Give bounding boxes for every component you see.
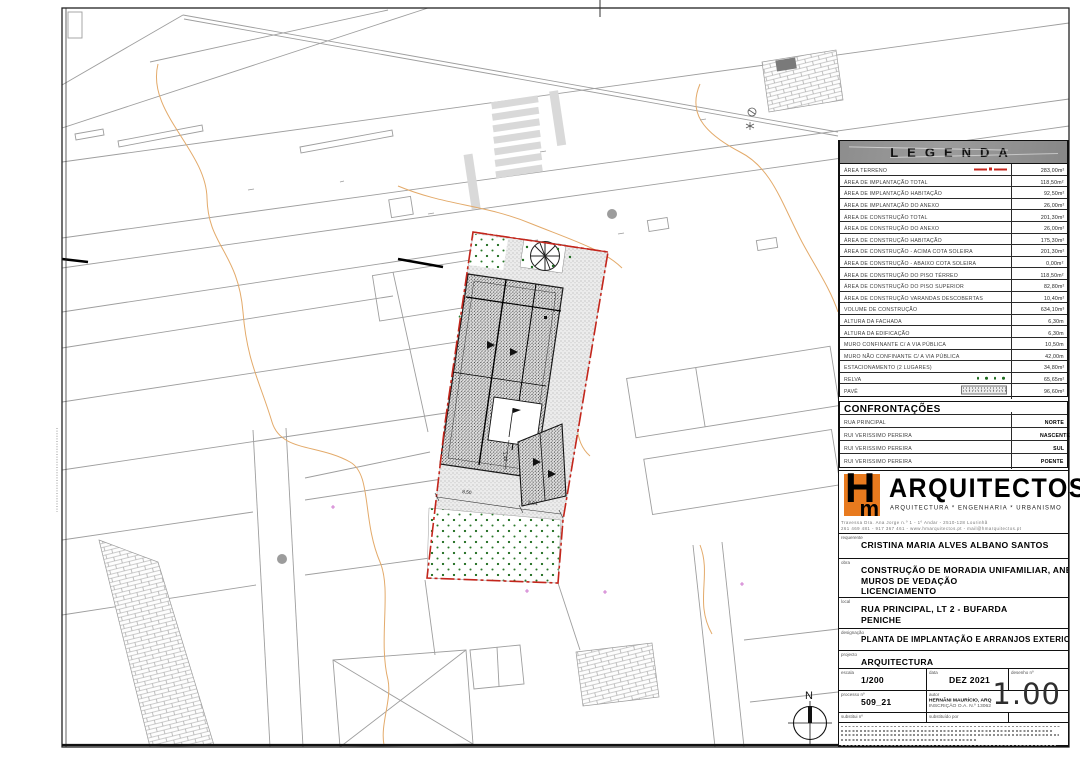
- legend-row: PAVÊ96,60m²: [840, 384, 1067, 396]
- processo-value: 509_21: [839, 697, 926, 708]
- section-requerente: requerente CRISTINA MARIA ALVES ALBANO S…: [839, 533, 1068, 558]
- section-substitui: substitui nº substituído por: [839, 712, 1068, 722]
- logo-letter-m: m: [859, 498, 879, 520]
- north-arrow-icon: N: [788, 690, 832, 745]
- sym-relva-icon: [975, 377, 1007, 380]
- zebra-crossing: [456, 90, 573, 209]
- legend-row-value: 634,10m³: [1040, 307, 1064, 313]
- legend-row-value: 201,30m²: [1040, 214, 1064, 220]
- legend-row-value: 96,60m²: [1043, 389, 1064, 395]
- confrontacoes-table: CONFRONTAÇÕES RUA PRINCIPALNORTERUI VERI…: [839, 401, 1068, 468]
- relva-area-bottom: [427, 508, 561, 583]
- sym-boundary-icon: [974, 168, 1007, 171]
- legend-row-value: 6,30m: [1049, 319, 1064, 325]
- north-label: N: [805, 690, 813, 702]
- legend-row-value: 175,30m²: [1040, 237, 1064, 243]
- section-obra: obra CONSTRUÇÃO DE MORADIA UNIFAMILIAR, …: [839, 558, 1068, 597]
- legend-row-value: 82,80m²: [1043, 284, 1064, 290]
- legend-rows: ÁREA TERRENO283,00m²ÁREA DE IMPLANTAÇÃO …: [840, 164, 1067, 396]
- legend-row-value: 65,65m²: [1043, 377, 1064, 383]
- confrontacao-label: RUI VERISSIMO PEREIRA: [844, 446, 912, 452]
- drawing-number: 1.00: [992, 677, 1061, 711]
- legend-row-value: 10,40m²: [1043, 295, 1064, 301]
- legend-row-value: 92,50m²: [1043, 191, 1064, 197]
- firm-logo: H m: [844, 474, 880, 516]
- confrontacao-direction: NORTE: [1045, 420, 1064, 426]
- firm-block: H m ARQUITECTOS ARQUITECTURA * ENGENHARI…: [839, 470, 1068, 533]
- section-notes: [839, 722, 1068, 747]
- legend-row-value: 34,80m²: [1043, 365, 1064, 371]
- brick-area-top-right: [762, 50, 843, 112]
- firm-address: Travessa Dra. Ana Jorge n.º 1 - 1º Andar…: [841, 520, 1067, 531]
- legend-row-value: 42,00m: [1045, 353, 1064, 359]
- firm-name: ARQUITECTOS: [889, 473, 1080, 504]
- tree-icon: [531, 242, 560, 271]
- confrontacoes-rows: RUA PRINCIPALNORTERUI VERISSIMO PEREIRAN…: [840, 415, 1067, 467]
- legend-row-value: 201,30m²: [1040, 249, 1064, 255]
- plot: 8,50 5,04 1,48: [427, 232, 608, 583]
- section-local: local RUA PRINCIPAL, LT 2 - BUFARDA PENI…: [839, 597, 1068, 628]
- manhole-icon: [607, 209, 617, 219]
- confrontacao-direction: POENTE: [1041, 459, 1064, 465]
- relva-area-top: [469, 234, 508, 270]
- section-designacao: designação PLANTA DE IMPLANTAÇÃO E ARRAN…: [839, 628, 1068, 650]
- title-block-panel: LEGENDA ÁREA TERRENO283,00m²ÁREA DE IMPL…: [838, 140, 1069, 747]
- wall-segment: [398, 259, 443, 267]
- legend-row-value: 6,30m: [1049, 330, 1064, 336]
- autor-inscricao: INSCRIÇÃO O.A. N.º 13062: [929, 703, 978, 709]
- dimension-label: 1,48: [501, 452, 508, 462]
- legend-row-value: 10,50m: [1045, 342, 1064, 348]
- spot-ticks: [248, 119, 706, 234]
- firm-tagline: ARQUITECTURA * ENGENHARIA * URBANISMO: [890, 504, 1062, 511]
- brick-area-bottom-left: [99, 540, 214, 747]
- legend-table: ÁREA TERRENO283,00m²ÁREA DE IMPLANTAÇÃO …: [839, 164, 1068, 397]
- legend-row-value: 118,50m²: [1041, 180, 1064, 186]
- manhole-icon: [277, 554, 287, 564]
- legend-row-label: PAVÊ: [844, 389, 858, 395]
- utility-pole-icon: [746, 108, 756, 130]
- legend-row-value: 26,00m²: [1043, 226, 1064, 232]
- brick-area-bottom-center: [576, 643, 659, 706]
- section-projecto: projecto ARQUITECTURA: [839, 650, 1068, 668]
- sym-pave-icon: [961, 386, 1007, 395]
- legend-row-value: 283,00m²: [1040, 168, 1064, 174]
- confrontacao-direction: SUL: [1053, 446, 1064, 452]
- requerente-name: CRISTINA MARIA ALVES ALBANO SANTOS: [839, 540, 1068, 551]
- confrontacao-direction: NASCENTE: [1040, 433, 1070, 439]
- legend-row-value: 0,00m²: [1047, 261, 1064, 267]
- escala-value: 1/200: [839, 675, 926, 686]
- legend-row-value: 118,50m²: [1041, 272, 1064, 278]
- legend-row-value: 26,00m²: [1043, 203, 1064, 209]
